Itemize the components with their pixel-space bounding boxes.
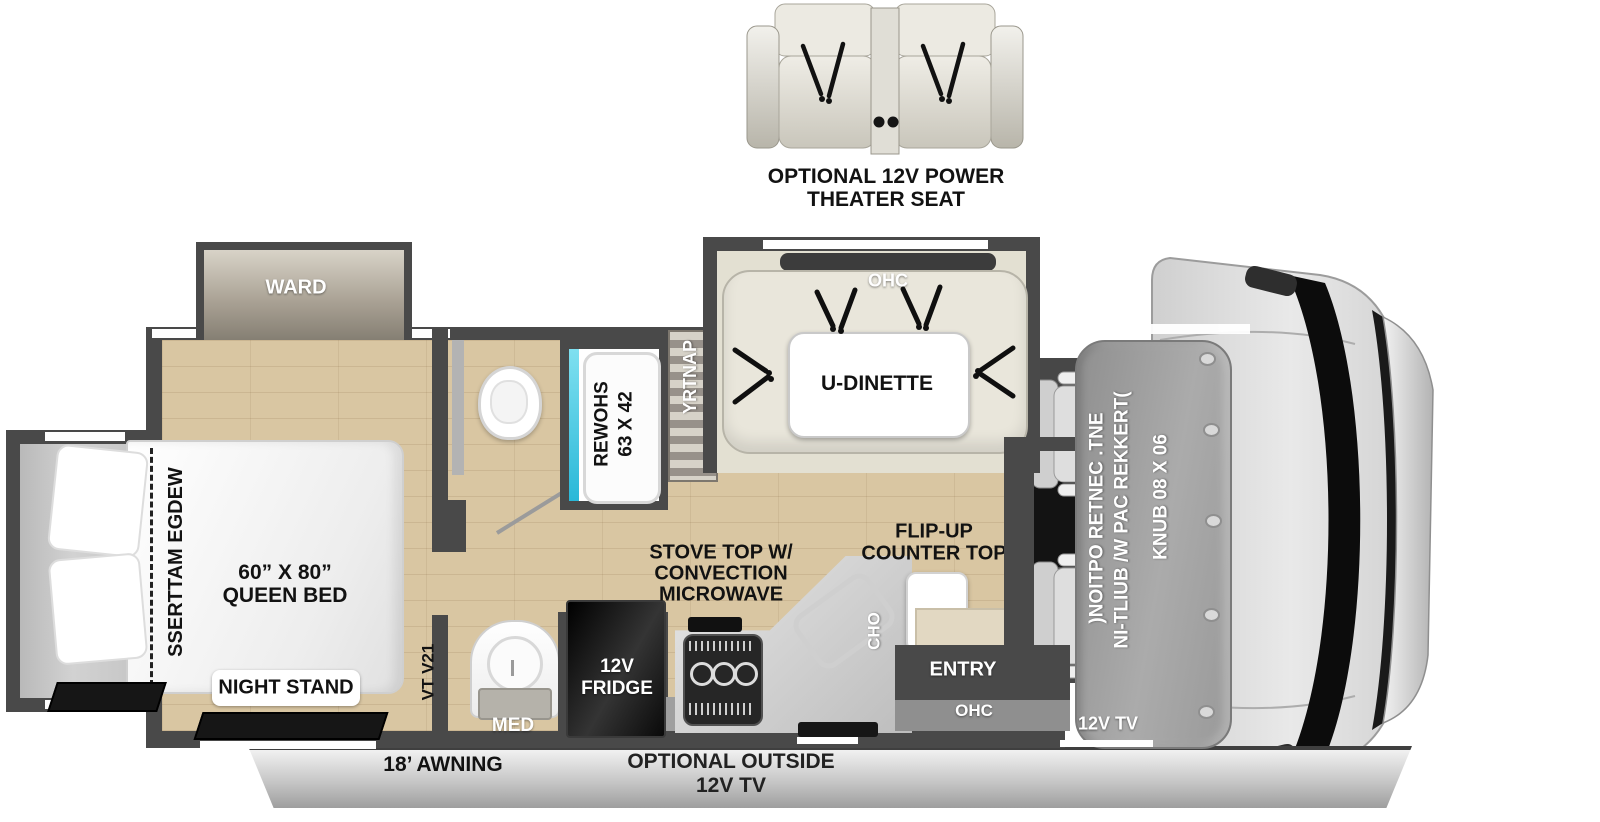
dinette-seatbelts <box>700 230 1040 480</box>
stove-burner-2 <box>712 662 736 686</box>
bottom-wall-window-left <box>200 741 376 749</box>
counter-ohc-label: CHO <box>866 612 883 650</box>
outside-tv-label-line1: OPTIONAL OUTSIDE <box>627 751 834 773</box>
pillow-top <box>47 443 150 558</box>
bed-bath-wall-upper <box>432 327 448 500</box>
bed-slide-top-window <box>45 432 125 441</box>
rivet-3 <box>1205 514 1222 528</box>
theater-seat-graphic <box>745 2 1025 162</box>
stove-grate-bottom <box>689 703 753 715</box>
shower-label-line1: 63 X 42 <box>617 391 636 457</box>
toilet-seat <box>490 380 528 424</box>
night-stand-label: NIGHT STAND <box>218 678 353 699</box>
shower-glass-accent <box>569 349 579 501</box>
entry-threshold <box>798 722 878 737</box>
rivet-2 <box>1203 423 1220 437</box>
theater-cushion-right <box>895 56 991 148</box>
front-tv-label: 12V TV <box>1078 715 1138 734</box>
wedge-fold-line <box>150 448 153 686</box>
bottom-wall-window-kitchen <box>797 737 858 744</box>
fridge-label-line1: 12V <box>600 657 634 677</box>
theater-arm-left <box>747 26 779 148</box>
right-wall-vertical <box>1004 437 1034 652</box>
seatbelt-icon-top-right <box>903 287 940 331</box>
entry-step <box>915 608 1008 649</box>
bed-slide-left-wall <box>6 430 20 712</box>
pillow-bottom <box>48 552 149 666</box>
front-window-strip <box>1060 740 1153 747</box>
fridge-label-line2: FRIDGE <box>581 679 653 699</box>
entry-label: ENTRY <box>929 660 996 681</box>
stove-label-line1: STOVE TOP W/ <box>649 543 792 564</box>
theater-back-left <box>775 4 875 56</box>
left-wall-upper <box>146 327 162 448</box>
seatbelt-icon-right <box>973 348 1013 396</box>
bath-faucet <box>511 660 514 676</box>
queen-bed-label-line2: QUEEN BED <box>223 585 348 607</box>
seatbelt-icon-top-left <box>817 290 855 334</box>
bedroom-tv-label: VT V21 <box>420 644 437 701</box>
awning-label: 18’ AWNING <box>383 754 502 776</box>
med-label: MED <box>492 716 534 736</box>
rivet-4 <box>1203 608 1220 622</box>
seatbelt-icon-left <box>735 350 774 402</box>
theater-seat-label-line2: THEATER SEAT <box>807 189 965 211</box>
queen-bed-label-line1: 60” X 80” <box>238 562 331 584</box>
rivet-5 <box>1198 705 1215 719</box>
bunk-label-line2: )NOITPO RETNEC .TNE <box>1088 412 1107 623</box>
flipup-label-line1: FLIP-UP <box>895 522 973 543</box>
entry-ohc-label: OHC <box>955 702 993 720</box>
bed-bath-wall-stub <box>432 500 466 552</box>
stove-grate-top <box>689 641 753 651</box>
stove-burner-1 <box>690 662 714 686</box>
stove-burner-3 <box>734 662 758 686</box>
theater-back-right <box>895 4 995 56</box>
theater-console <box>871 8 899 154</box>
flipup-label-line2: COUNTER TOP <box>861 544 1006 565</box>
shower-label-line2: REWOHS <box>593 381 612 467</box>
floor-mat-slide <box>47 682 167 712</box>
stove-label-line2: CONVECTION <box>654 564 787 585</box>
pantry-label: YRTNAP <box>681 340 699 414</box>
cupholder-left-icon <box>874 117 885 128</box>
stove-label-line3: MICROWAVE <box>659 585 783 606</box>
theater-seat-label-line1: OPTIONAL 12V POWER <box>768 166 1005 188</box>
bath-door-panel <box>452 340 464 475</box>
bunk-label-line1: NI-TLIUB /W PAC REKKERT( <box>1113 391 1132 648</box>
cupholder-right-icon <box>888 117 899 128</box>
cabover-window-strip <box>1085 324 1250 334</box>
outside-tv-label-line2: 12V TV <box>696 775 766 797</box>
floor-mat-nightstand <box>193 712 388 740</box>
ward-label: WARD <box>265 278 326 299</box>
microwave-bar <box>688 617 742 632</box>
bath-sink-icon <box>487 636 543 692</box>
rv-floorplan: 18’ AWNING OPTIONAL OUTSIDE 12V TV WARD … <box>0 0 1600 822</box>
wedge-mattress-label: SSERTTAM EGDEW <box>166 467 186 657</box>
theater-arm-right <box>991 26 1023 148</box>
top-wall-window-left <box>152 329 196 338</box>
rivet-1 <box>1199 352 1216 366</box>
bunk-size-label: KNUB 08 X 06 <box>1152 434 1171 560</box>
